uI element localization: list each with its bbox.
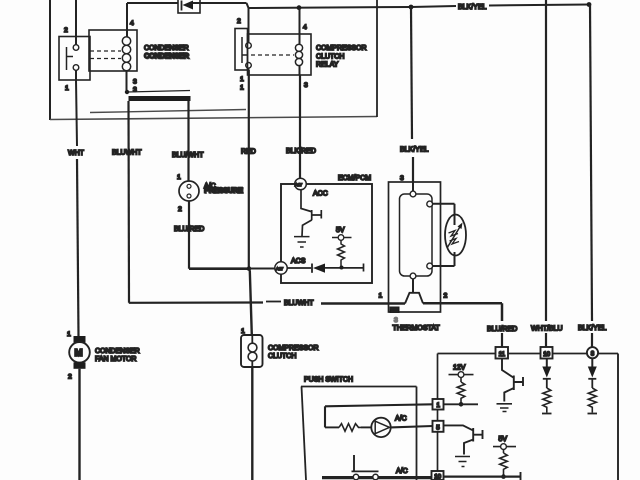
svg-text:ECM/PCM: ECM/PCM <box>338 175 371 182</box>
svg-text:4: 4 <box>130 20 134 27</box>
svg-text:A27: A27 <box>276 266 284 271</box>
svg-text:5: 5 <box>436 424 440 431</box>
svg-text:3: 3 <box>133 79 137 86</box>
svg-text:4: 4 <box>303 24 307 31</box>
svg-text:3: 3 <box>400 175 404 182</box>
svg-text:BLU/RED: BLU/RED <box>487 326 517 333</box>
svg-text:COMPRESSOR: COMPRESSOR <box>316 45 367 52</box>
svg-text:2: 2 <box>444 293 448 300</box>
svg-text:1: 1 <box>67 331 71 338</box>
svg-text:11: 11 <box>499 351 506 358</box>
svg-text:1: 1 <box>177 174 181 181</box>
svg-text:ACC: ACC <box>313 191 328 198</box>
svg-text:2: 2 <box>68 374 72 381</box>
svg-text:BLUWHT: BLUWHT <box>112 150 142 157</box>
svg-text:CONDENSER: CONDENSER <box>144 45 189 52</box>
svg-text:A/C: A/C <box>395 416 407 423</box>
svg-text:1: 1 <box>240 76 244 83</box>
svg-text:A17: A17 <box>295 182 303 187</box>
svg-text:THERMOSTAT: THERMOSTAT <box>393 325 441 332</box>
svg-text:COMPRESSOR: COMPRESSOR <box>268 345 319 352</box>
svg-text:CONDENSER: CONDENSER <box>145 54 190 61</box>
svg-text:PUSH SWITCH: PUSH SWITCH <box>304 377 353 384</box>
svg-text:3: 3 <box>394 317 398 324</box>
svg-text:BLU/WHT: BLU/WHT <box>172 152 204 159</box>
svg-text:WHT/BLU: WHT/BLU <box>531 326 563 333</box>
svg-text:RED: RED <box>241 149 256 156</box>
svg-text:BLK/YEL: BLK/YEL <box>400 147 429 154</box>
svg-text:BLUWHT: BLUWHT <box>284 300 314 307</box>
svg-text:BLK/RED: BLK/RED <box>286 148 316 155</box>
svg-text:5V: 5V <box>336 227 345 234</box>
svg-text:1: 1 <box>379 293 383 300</box>
svg-text:3: 3 <box>304 82 308 89</box>
svg-text:CLUTCH: CLUTCH <box>316 54 344 61</box>
svg-text:CONDENSER: CONDENSER <box>95 348 140 355</box>
svg-text:RELAY: RELAY <box>316 62 339 69</box>
svg-text:2: 2 <box>64 27 68 34</box>
svg-text:1: 1 <box>240 85 244 92</box>
svg-text:PRESSURE: PRESSURE <box>205 188 244 195</box>
svg-text:10: 10 <box>434 474 441 480</box>
svg-text:BLK/YEL: BLK/YEL <box>578 325 607 332</box>
svg-text:10: 10 <box>543 351 550 358</box>
svg-text:A/C: A/C <box>396 468 408 475</box>
svg-text:5V: 5V <box>499 436 508 443</box>
svg-text:8: 8 <box>591 350 595 357</box>
svg-text:1: 1 <box>241 328 245 335</box>
svg-text:ACS: ACS <box>291 258 306 265</box>
svg-text:12V: 12V <box>453 365 466 372</box>
svg-text:BLK/YEL: BLK/YEL <box>458 4 487 11</box>
svg-text:1: 1 <box>65 85 69 92</box>
svg-text:1: 1 <box>437 402 441 409</box>
svg-text:2: 2 <box>178 206 182 213</box>
svg-text:M: M <box>74 348 82 359</box>
svg-text:WHT: WHT <box>68 150 85 157</box>
svg-text:FAN MOTOR: FAN MOTOR <box>95 356 136 363</box>
svg-text:CLUTCH: CLUTCH <box>268 353 296 360</box>
svg-text:2: 2 <box>237 18 241 25</box>
svg-text:BLU/RED: BLU/RED <box>174 226 204 233</box>
svg-text:TH: TH <box>391 308 398 314</box>
